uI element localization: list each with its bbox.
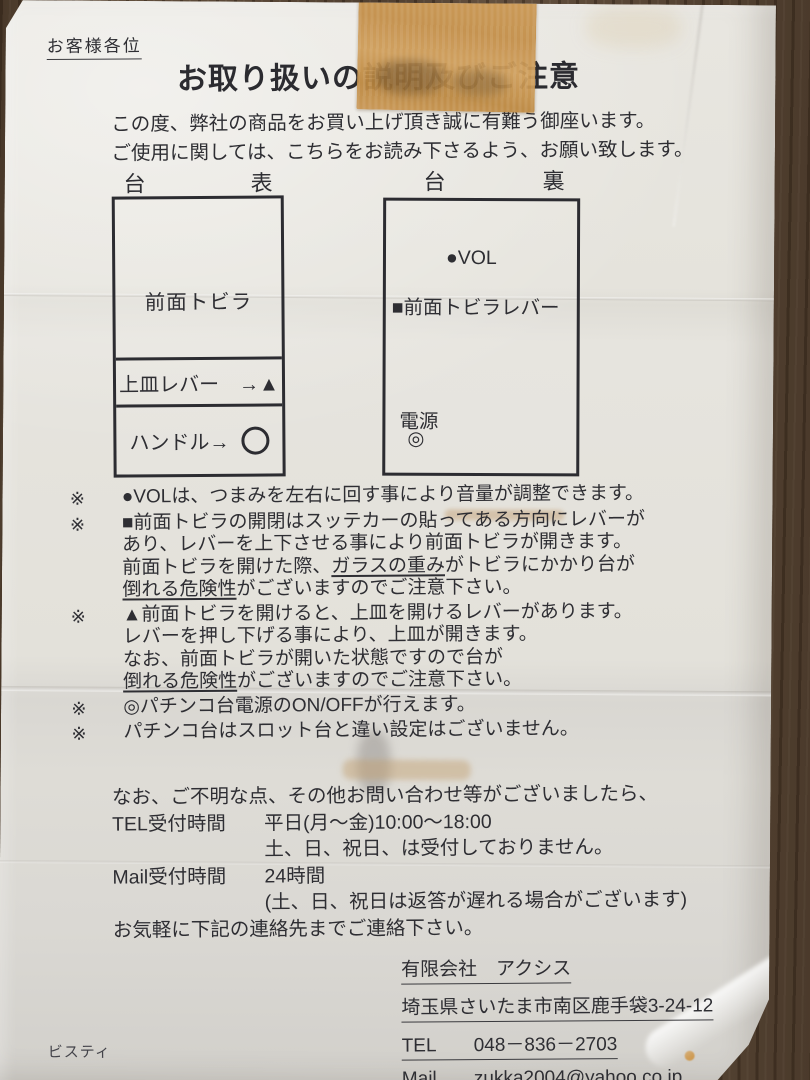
- document-content: お客様各位 お取り扱いの説明及びご注意 この度、弊社の商品をお買い上げ頂き誠に有…: [0, 0, 776, 1080]
- note-line: パチンコ台はスロット台と違い設定はございません。: [123, 718, 579, 744]
- tel-hours-value: 平日(月～金)10:00～18:00: [264, 810, 492, 834]
- tel-hours-label: TEL受付時間: [112, 810, 264, 838]
- mail-delay-note: (土、日、祝日は返答が遅れる場合がございます): [265, 887, 688, 916]
- reference-mark-icon: ※: [70, 487, 122, 511]
- notes-list: ※●VOLは、つまみを左右に回す事により音量が調整できます。※■前面トビラの開閉…: [70, 482, 740, 747]
- front-door-section: 前面トビラ: [115, 198, 282, 357]
- company-name-row: 有限会社 アクシス: [401, 952, 713, 984]
- note-text: パチンコ台はスロット台と違い設定はございません。: [123, 718, 579, 745]
- company-tel-number: 048－836－2703: [474, 1034, 618, 1056]
- company-block: 有限会社 アクシス 埼玉県さいたま市南区鹿手袋3-24-12 TEL048－83…: [401, 952, 714, 1080]
- handle-circle-icon: [241, 426, 269, 454]
- door-lever-label: ■前面トビラレバー: [392, 291, 560, 321]
- front-title-left: 台: [124, 166, 147, 198]
- ink-blotch: [452, 69, 508, 96]
- note-line: ▲前面トビラを開けると、上皿を開けるレバーがあります。: [123, 600, 633, 626]
- tray-lever-section: 上皿レバー →▲: [116, 356, 282, 404]
- reference-mark-icon: ※: [70, 512, 123, 602]
- reference-mark-icon: ※: [71, 604, 124, 694]
- tel-hours-row: TEL受付時間平日(月～金)10:00～18:00: [112, 807, 687, 838]
- tray-lever-label: 上皿レバー →▲: [119, 367, 279, 397]
- mail-hours-row: Mail受付時間24時間: [112, 860, 687, 891]
- tel-closed-note: 土、日、祝日、は受付しておりません。: [264, 834, 687, 863]
- document-paper: お客様各位 お取り扱いの説明及びご注意 この度、弊社の商品をお買い上げ頂き誠に有…: [0, 0, 776, 1080]
- company-mail-row: Mailzukka2004@yahoo.co.jp: [402, 1066, 714, 1080]
- ink-blotch: [375, 60, 446, 95]
- brand-note: ビスティ: [48, 1041, 111, 1062]
- front-diagram-title: 台 表: [124, 165, 274, 198]
- note-line: 倒れる危険性がございますのでご注意下さい。: [122, 576, 645, 602]
- note-text: ◎パチンコ台電源のON/OFFが行えます。: [123, 694, 476, 720]
- reference-mark-icon: ※: [71, 722, 123, 746]
- intro-line-2: ご使用に関しては、こちらをお読み下さるよう、お願い致します。: [111, 135, 693, 168]
- company-mail-address: zukka2004@yahoo.co.jp: [474, 1067, 683, 1080]
- front-diagram: 前面トビラ 上皿レバー →▲ ハンドル→: [112, 195, 286, 477]
- back-diagram-title: 台 裏: [423, 163, 565, 196]
- power-switch-icon: ◎: [407, 427, 424, 451]
- note-item: ※▲前面トビラを開けると、上皿を開けるレバーがあります。レバーを押し下げる事によ…: [71, 600, 740, 695]
- note-line: 前面トビラを開けた際、ガラスの重みがトビラにかかり台が: [122, 553, 645, 579]
- wood-background: お客様各位 お取り扱いの説明及びご注意 この度、弊社の商品をお買い上げ頂き誠に有…: [0, 0, 810, 1080]
- front-door-label: 前面トビラ: [145, 285, 253, 358]
- handle-section: ハンドル→: [116, 403, 282, 474]
- intro-paragraph: この度、弊社の商品をお買い上げ頂き誠に有難う御座います。 ご使用に関しては、こち…: [111, 107, 693, 168]
- contact-closing: お気軽に下記の連絡先までご連絡下さい。: [113, 913, 688, 944]
- volume-knob-label: ●VOL: [446, 247, 497, 270]
- company-address: 埼玉県さいたま市南区鹿手袋3-24-12: [401, 990, 713, 1022]
- note-line: ◎パチンコ台電源のON/OFFが行えます。: [123, 694, 476, 719]
- salutation: お客様各位: [47, 31, 142, 60]
- reference-mark-icon: ※: [71, 696, 123, 720]
- contact-intro: なお、ご不明な点、その他お問い合わせ等がございましたら、: [112, 781, 687, 812]
- mail-hours-label: Mail受付時間: [112, 863, 264, 891]
- back-title-left: 台: [423, 164, 446, 196]
- back-title-right: 裏: [542, 163, 565, 195]
- note-item: ※◎パチンコ台電源のON/OFFが行えます。: [71, 692, 739, 720]
- company-tel-row: TEL048－836－2703: [402, 1028, 714, 1060]
- note-item: ※パチンコ台はスロット台と違い設定はございません。: [71, 717, 739, 745]
- mail-hours-value: 24時間: [264, 865, 325, 887]
- company-tel-label: TEL: [402, 1035, 474, 1058]
- handle-label: ハンドル→: [129, 426, 229, 456]
- contact-block: なお、ご不明な点、その他お問い合わせ等がございましたら、 TEL受付時間平日(月…: [112, 781, 688, 944]
- company-mail-label: Mail: [402, 1068, 474, 1080]
- front-title-right: 表: [250, 165, 273, 197]
- note-item: ※■前面トビラの開閉はスッテカーの貼ってある方向にレバーがあり、レバーを上下させ…: [70, 508, 739, 603]
- note-line: 倒れる危険性がございますのでご注意下さい。: [123, 668, 633, 694]
- intro-line-1: この度、弊社の商品をお買い上げ頂き誠に有難う御座います。: [111, 107, 693, 140]
- company-name: 有限会社 アクシス: [401, 953, 571, 984]
- note-text: ▲前面トビラを開けると、上皿を開けるレバーがあります。レバーを押し下げる事により…: [123, 600, 634, 694]
- note-line: ●VOLは、つまみを左右に回す事により音量が調整できます。: [122, 483, 644, 509]
- back-diagram: ●VOL ■前面トビラレバー 電源 ◎: [382, 198, 580, 477]
- note-text: ●VOLは、つまみを左右に回す事により音量が調整できます。: [122, 483, 644, 510]
- note-text: ■前面トビラの開閉はスッテカーの貼ってある方向にレバーがあり、レバーを上下させる…: [122, 508, 646, 602]
- note-item: ※●VOLは、つまみを左右に回す事により音量が調整できます。: [70, 482, 738, 510]
- masking-tape: [356, 0, 536, 113]
- company-address-row: 埼玉県さいたま市南区鹿手袋3-24-12: [401, 990, 713, 1022]
